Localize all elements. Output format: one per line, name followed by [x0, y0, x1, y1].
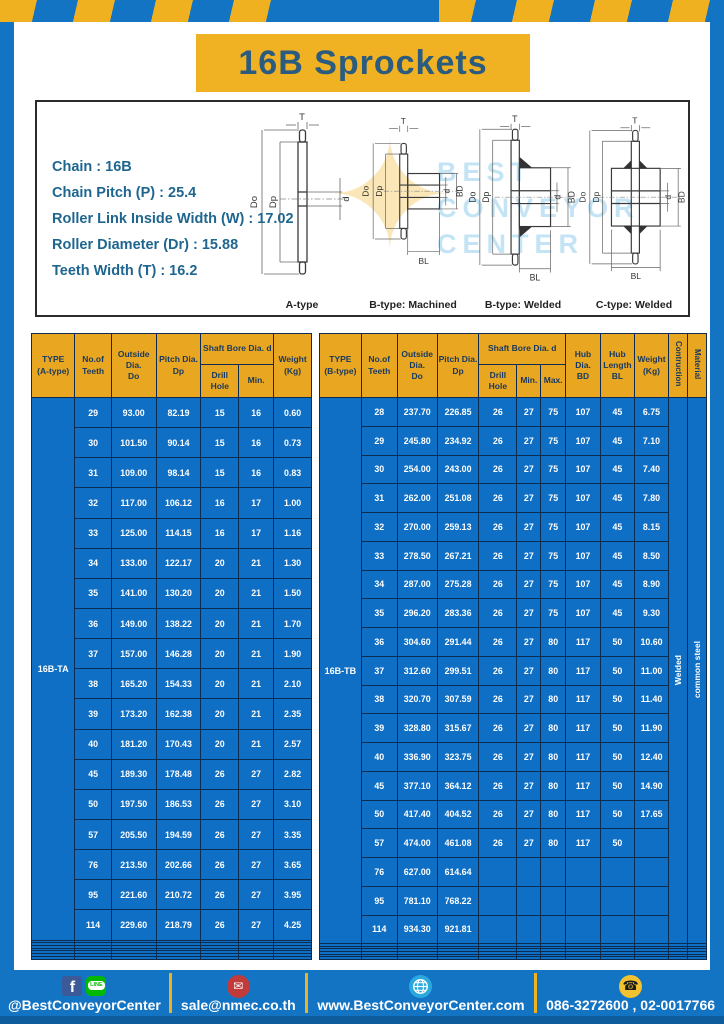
cell: 27: [239, 819, 274, 849]
facebook-icon: f: [62, 976, 82, 996]
cell: 50: [600, 714, 634, 743]
cell: 15: [201, 398, 239, 428]
cell: 234.92: [437, 426, 479, 455]
cell: 95: [361, 886, 397, 915]
cell: 117: [566, 685, 601, 714]
cell: 7.10: [634, 426, 668, 455]
cell: 39: [361, 714, 397, 743]
table-row: 38320.70307.592627801175011.40: [320, 685, 707, 714]
cell: [201, 956, 239, 959]
cell: [479, 957, 517, 960]
cell: 27: [239, 910, 274, 940]
cell: 50: [600, 685, 634, 714]
table-b-header: TYPE (B-type) No.of Teeth Outside Dia. D…: [320, 334, 707, 398]
cell: 34: [361, 570, 397, 599]
cell: [634, 886, 668, 915]
cell: 45: [600, 484, 634, 513]
col-type: TYPE (B-type): [320, 334, 362, 398]
col-pitch-dia: Pitch Dia. Dp: [156, 334, 201, 398]
sprocket-drawings: T Do Dp: [245, 108, 689, 314]
caution-stripe-band: [0, 0, 724, 22]
col-drill-hole: Drill Hole: [479, 365, 517, 398]
cell: [32, 956, 75, 959]
cell: 210.72: [156, 880, 201, 910]
cell: 50: [600, 771, 634, 800]
cell: 27: [239, 880, 274, 910]
cell: 328.80: [397, 714, 437, 743]
phone-icon: ☎: [619, 975, 642, 998]
cell: 364.12: [437, 771, 479, 800]
cell: [239, 956, 274, 959]
cell: 165.20: [111, 669, 156, 699]
cell: 117: [566, 743, 601, 772]
cell: 50: [600, 800, 634, 829]
cell: 267.21: [437, 541, 479, 570]
cell: 57: [75, 819, 111, 849]
table-a: TYPE (A-type) No.of Teeth Outside Dia. D…: [31, 333, 312, 960]
drawing-b-type-machined: T Do Dp: [359, 108, 467, 314]
cell: 28: [361, 398, 397, 427]
cell: 107: [566, 513, 601, 542]
cell: 117: [566, 628, 601, 657]
cell: 614.64: [437, 858, 479, 887]
cell: 117: [566, 829, 601, 858]
table-a-header: TYPE (A-type) No.of Teeth Outside Dia. D…: [32, 334, 312, 398]
cell: [517, 957, 541, 960]
cell: 186.53: [156, 789, 201, 819]
cell: 114: [75, 910, 111, 940]
table-row: 34287.00275.28262775107458.90: [320, 570, 707, 599]
cell: 291.44: [437, 628, 479, 657]
cell: [600, 957, 634, 960]
cell: [517, 858, 541, 887]
drawing-b-type-welded: T Do Dp: [467, 108, 579, 314]
cell: 125.00: [111, 518, 156, 548]
cell: 31: [75, 458, 111, 488]
cell: 4.25: [274, 910, 312, 940]
cell: 37: [75, 639, 111, 669]
svg-text:Dp: Dp: [374, 186, 384, 197]
svg-text:BL: BL: [631, 271, 642, 281]
spec-line-teeth-width: Teeth Width (T) : 16.2: [52, 258, 294, 284]
cell: 90.14: [156, 428, 201, 458]
cell: 243.00: [437, 455, 479, 484]
table-row: 36304.60291.442627801175010.60: [320, 628, 707, 657]
cell: 16: [201, 488, 239, 518]
email-icon: ✉: [227, 975, 250, 998]
table-row: 35296.20283.36262775107459.30: [320, 599, 707, 628]
cell: 237.70: [397, 398, 437, 427]
cell: 315.67: [437, 714, 479, 743]
table-row: 32270.00259.13262775107458.15: [320, 513, 707, 542]
cell: 173.20: [111, 699, 156, 729]
cell: 299.51: [437, 656, 479, 685]
stripe-pattern-left: [0, 0, 285, 22]
cell: [541, 858, 566, 887]
cell: 30: [361, 455, 397, 484]
cell: 2.35: [274, 699, 312, 729]
cell: 76: [75, 850, 111, 880]
cell: 27: [517, 829, 541, 858]
spec-panel: ✦ BEST CONVEYOR CENTER Chain : 16B Chain…: [35, 100, 690, 317]
cell: 117: [566, 656, 601, 685]
cell: 11.90: [634, 714, 668, 743]
cell: [566, 915, 601, 944]
empty-row: [32, 956, 312, 959]
cell: 3.95: [274, 880, 312, 910]
cell: 0.60: [274, 398, 312, 428]
table-row: 40336.90323.752627801175012.40: [320, 743, 707, 772]
cell: 197.50: [111, 789, 156, 819]
cell: 40: [361, 743, 397, 772]
cell: 27: [517, 541, 541, 570]
table-row: 16B-TB28237.70226.85262775107456.75Welde…: [320, 398, 707, 427]
cell: [566, 886, 601, 915]
svg-text:T: T: [401, 116, 406, 126]
cell: 37: [361, 656, 397, 685]
cell: [479, 858, 517, 887]
cell: 80: [541, 743, 566, 772]
cell: 45: [600, 599, 634, 628]
cell: 21: [239, 578, 274, 608]
empty-row: [320, 957, 707, 960]
cell: 146.28: [156, 639, 201, 669]
spec-line-roller-dia: Roller Diameter (Dr) : 15.88: [52, 232, 294, 258]
cell: 2.57: [274, 729, 312, 759]
footer-social: f LINE @BestConveyorCenter: [0, 970, 169, 1016]
cell: 45: [75, 759, 111, 789]
cell: 80: [541, 714, 566, 743]
cell: 27: [517, 656, 541, 685]
cell: [566, 858, 601, 887]
cell: 20: [201, 639, 239, 669]
cell: 26: [479, 685, 517, 714]
svg-text:d: d: [441, 189, 451, 194]
cell: 27: [517, 628, 541, 657]
cell: 26: [479, 628, 517, 657]
cell: 21: [239, 608, 274, 638]
cell: 17: [239, 518, 274, 548]
cell: 45: [600, 513, 634, 542]
cell: [274, 956, 312, 959]
cell: [320, 957, 362, 960]
cell: 21: [239, 699, 274, 729]
cell: 312.60: [397, 656, 437, 685]
cell: 29: [361, 426, 397, 455]
cell: 320.70: [397, 685, 437, 714]
cell: 1.90: [274, 639, 312, 669]
cell: 80: [541, 829, 566, 858]
cell: 307.59: [437, 685, 479, 714]
cell: 114: [361, 915, 397, 944]
table-a-body: 16B-TA2993.0082.1915160.6030101.5090.141…: [32, 398, 312, 960]
cell: 20: [201, 578, 239, 608]
cell: 27: [239, 850, 274, 880]
cell: 245.80: [397, 426, 437, 455]
cell: 29: [75, 398, 111, 428]
cell: 226.85: [437, 398, 479, 427]
cell: 98.14: [156, 458, 201, 488]
cell: 80: [541, 628, 566, 657]
spec-line-pitch: Chain Pitch (P) : 25.4: [52, 180, 294, 206]
cell: 82.19: [156, 398, 201, 428]
cell: 75: [541, 455, 566, 484]
cell: 27: [239, 759, 274, 789]
cell: 50: [600, 829, 634, 858]
cell: 75: [541, 570, 566, 599]
cell: 57: [361, 829, 397, 858]
datasheet-page: 16B Sprockets ✦ BEST CONVEYOR CENTER Cha…: [0, 0, 724, 1024]
col-shaft-bore: Shaft Bore Dia. d: [201, 334, 274, 365]
cell: 15: [201, 458, 239, 488]
cell: 181.20: [111, 729, 156, 759]
svg-text:T: T: [299, 112, 305, 123]
cell: 45: [600, 426, 634, 455]
cell: 26: [479, 714, 517, 743]
cell: 202.66: [156, 850, 201, 880]
cell: 3.10: [274, 789, 312, 819]
cell: [600, 858, 634, 887]
drawing-caption: C-type: Welded: [596, 299, 672, 314]
cell: 27: [517, 599, 541, 628]
cell: 194.59: [156, 819, 201, 849]
cell: 80: [541, 685, 566, 714]
cell: 36: [75, 608, 111, 638]
cell: 0.83: [274, 458, 312, 488]
cell: 35: [75, 578, 111, 608]
cell: 27: [517, 714, 541, 743]
cell: 39: [75, 699, 111, 729]
cell: 50: [361, 800, 397, 829]
cell: 336.90: [397, 743, 437, 772]
cell: 107: [566, 426, 601, 455]
table-row: 16B-TA2993.0082.1915160.60: [32, 398, 312, 428]
col-max: Max.: [541, 365, 566, 398]
cell: 2.10: [274, 669, 312, 699]
b-type-machined-diagram: T Do Dp: [359, 108, 467, 278]
col-outside-dia: Outside Dia. Do: [111, 334, 156, 398]
cell: 107: [566, 541, 601, 570]
table-row: 45377.10364.122627801175014.90: [320, 771, 707, 800]
cell: 75: [541, 513, 566, 542]
spec-list: Chain : 16B Chain Pitch (P) : 25.4 Rolle…: [52, 154, 294, 284]
col-teeth: No.of Teeth: [75, 334, 111, 398]
website-url: www.BestConveyorCenter.com: [317, 998, 524, 1013]
cell: 12.40: [634, 743, 668, 772]
cell: [517, 915, 541, 944]
line-icon: LINE: [86, 976, 106, 996]
cell: 35: [361, 599, 397, 628]
cell: 3.65: [274, 850, 312, 880]
svg-text:BD: BD: [566, 191, 576, 203]
cell: 8.90: [634, 570, 668, 599]
col-min: Min.: [239, 365, 274, 398]
cell: 1.00: [274, 488, 312, 518]
cell: 7.80: [634, 484, 668, 513]
table-row: 57474.00461.0826278011750: [320, 829, 707, 858]
cell: 170.43: [156, 729, 201, 759]
cell: 1.16: [274, 518, 312, 548]
cell: [111, 956, 156, 959]
cell: 27: [517, 398, 541, 427]
cell: 17.65: [634, 800, 668, 829]
svg-text:BL: BL: [530, 273, 541, 283]
table-row: 31262.00251.08262775107457.80: [320, 484, 707, 513]
col-shaft-bore: Shaft Bore Dia. d: [479, 334, 566, 365]
cell: 17: [239, 488, 274, 518]
cell: 26: [479, 656, 517, 685]
cell: 26: [201, 789, 239, 819]
cell: [634, 858, 668, 887]
cell: 627.00: [397, 858, 437, 887]
table-b-body: 16B-TB28237.70226.85262775107456.75Welde…: [320, 398, 707, 960]
cell: 404.52: [437, 800, 479, 829]
cell: 6.75: [634, 398, 668, 427]
svg-text:T: T: [632, 115, 638, 125]
cell: 10.60: [634, 628, 668, 657]
cell: 27: [517, 484, 541, 513]
svg-text:d: d: [663, 195, 673, 200]
cell: 27: [517, 800, 541, 829]
cell: 95: [75, 880, 111, 910]
cell: 141.00: [111, 578, 156, 608]
svg-text:Dp: Dp: [481, 191, 491, 202]
cell: 323.75: [437, 743, 479, 772]
svg-text:d: d: [553, 195, 563, 200]
cell: 93.00: [111, 398, 156, 428]
cell: 26: [479, 800, 517, 829]
cell: 11.00: [634, 656, 668, 685]
cell: 768.22: [437, 886, 479, 915]
cell: 9.30: [634, 599, 668, 628]
cell: 304.60: [397, 628, 437, 657]
cell: 14.90: [634, 771, 668, 800]
cell: 20: [201, 729, 239, 759]
cell: 221.60: [111, 880, 156, 910]
cell: 15: [201, 428, 239, 458]
col-min: Min.: [517, 365, 541, 398]
cell: 16: [201, 518, 239, 548]
cell: 26: [479, 484, 517, 513]
cell: [634, 829, 668, 858]
col-pitch-dia: Pitch Dia. Dp: [437, 334, 479, 398]
social-handle: @BestConveyorCenter: [8, 998, 161, 1013]
cell: 27: [517, 513, 541, 542]
cell: 75: [541, 398, 566, 427]
col-type: TYPE (A-type): [32, 334, 75, 398]
table-row: 95781.10768.22: [320, 886, 707, 915]
cell: [566, 957, 601, 960]
cell: 259.13: [437, 513, 479, 542]
cell: 27: [517, 455, 541, 484]
page-title: 16B Sprockets: [196, 34, 530, 92]
cell: 16: [239, 458, 274, 488]
cell: [669, 957, 688, 960]
drawing-caption: B-type: Welded: [485, 299, 561, 314]
cell: 45: [600, 455, 634, 484]
material-merged-cell: common steel: [687, 398, 706, 944]
cell: 21: [239, 639, 274, 669]
cell: 7.40: [634, 455, 668, 484]
cell: 26: [479, 771, 517, 800]
cell: 934.30: [397, 915, 437, 944]
cell: 109.00: [111, 458, 156, 488]
cell: 27: [517, 570, 541, 599]
footer-email: ✉ sale@nmec.co.th: [172, 970, 305, 1016]
cell: 33: [361, 541, 397, 570]
cell: 21: [239, 548, 274, 578]
cell: 50: [600, 628, 634, 657]
cell: 75: [541, 541, 566, 570]
cell: 114.15: [156, 518, 201, 548]
white-page: 16B Sprockets ✦ BEST CONVEYOR CENTER Cha…: [14, 22, 710, 970]
cell: [541, 915, 566, 944]
email-address: sale@nmec.co.th: [181, 998, 296, 1013]
cell: [156, 956, 201, 959]
cell: 32: [75, 488, 111, 518]
cell: 26: [479, 570, 517, 599]
cell: 262.00: [397, 484, 437, 513]
cell: 36: [361, 628, 397, 657]
cell: 106.12: [156, 488, 201, 518]
bottom-edge-strip: [0, 1016, 724, 1024]
cell: 38: [361, 685, 397, 714]
cell: 21: [239, 669, 274, 699]
drawing-caption: B-type: Machined: [369, 299, 457, 314]
table-row: 76627.00614.64: [320, 858, 707, 887]
cell: 117.00: [111, 488, 156, 518]
cell: [600, 886, 634, 915]
contact-footer: f LINE @BestConveyorCenter ✉ sale@nmec.c…: [0, 970, 724, 1016]
svg-text:T: T: [512, 114, 518, 124]
cell: 26: [201, 819, 239, 849]
cell: 117: [566, 800, 601, 829]
cell: 27: [517, 771, 541, 800]
cell: 283.36: [437, 599, 479, 628]
spec-tables: TYPE (A-type) No.of Teeth Outside Dia. D…: [14, 333, 710, 960]
cell: 0.73: [274, 428, 312, 458]
col-hub-dia: Hub Dia. BD: [566, 334, 601, 398]
cell: 178.48: [156, 759, 201, 789]
svg-text:Do: Do: [579, 191, 587, 202]
cell: 107: [566, 599, 601, 628]
cell: 76: [361, 858, 397, 887]
table-b: TYPE (B-type) No.of Teeth Outside Dia. D…: [319, 333, 707, 960]
cell: 27: [517, 685, 541, 714]
cell: 1.50: [274, 578, 312, 608]
cell: 75: [541, 484, 566, 513]
cell: 26: [479, 426, 517, 455]
cell: 377.10: [397, 771, 437, 800]
svg-text:Dp: Dp: [591, 191, 601, 202]
cell: 278.50: [397, 541, 437, 570]
type-merged-cell: 16B-TB: [320, 398, 362, 944]
col-drill-hole: Drill Hole: [201, 365, 239, 398]
cell: 107: [566, 484, 601, 513]
cell: 26: [479, 513, 517, 542]
cell: [517, 886, 541, 915]
c-type-welded-diagram: T Do: [579, 108, 689, 290]
cell: 45: [600, 570, 634, 599]
cell: [600, 915, 634, 944]
cell: [687, 957, 706, 960]
cell: 213.50: [111, 850, 156, 880]
cell: 107: [566, 398, 601, 427]
cell: 26: [479, 599, 517, 628]
drawing-caption: A-type: [286, 299, 319, 314]
cell: 461.08: [437, 829, 479, 858]
cell: 189.30: [111, 759, 156, 789]
